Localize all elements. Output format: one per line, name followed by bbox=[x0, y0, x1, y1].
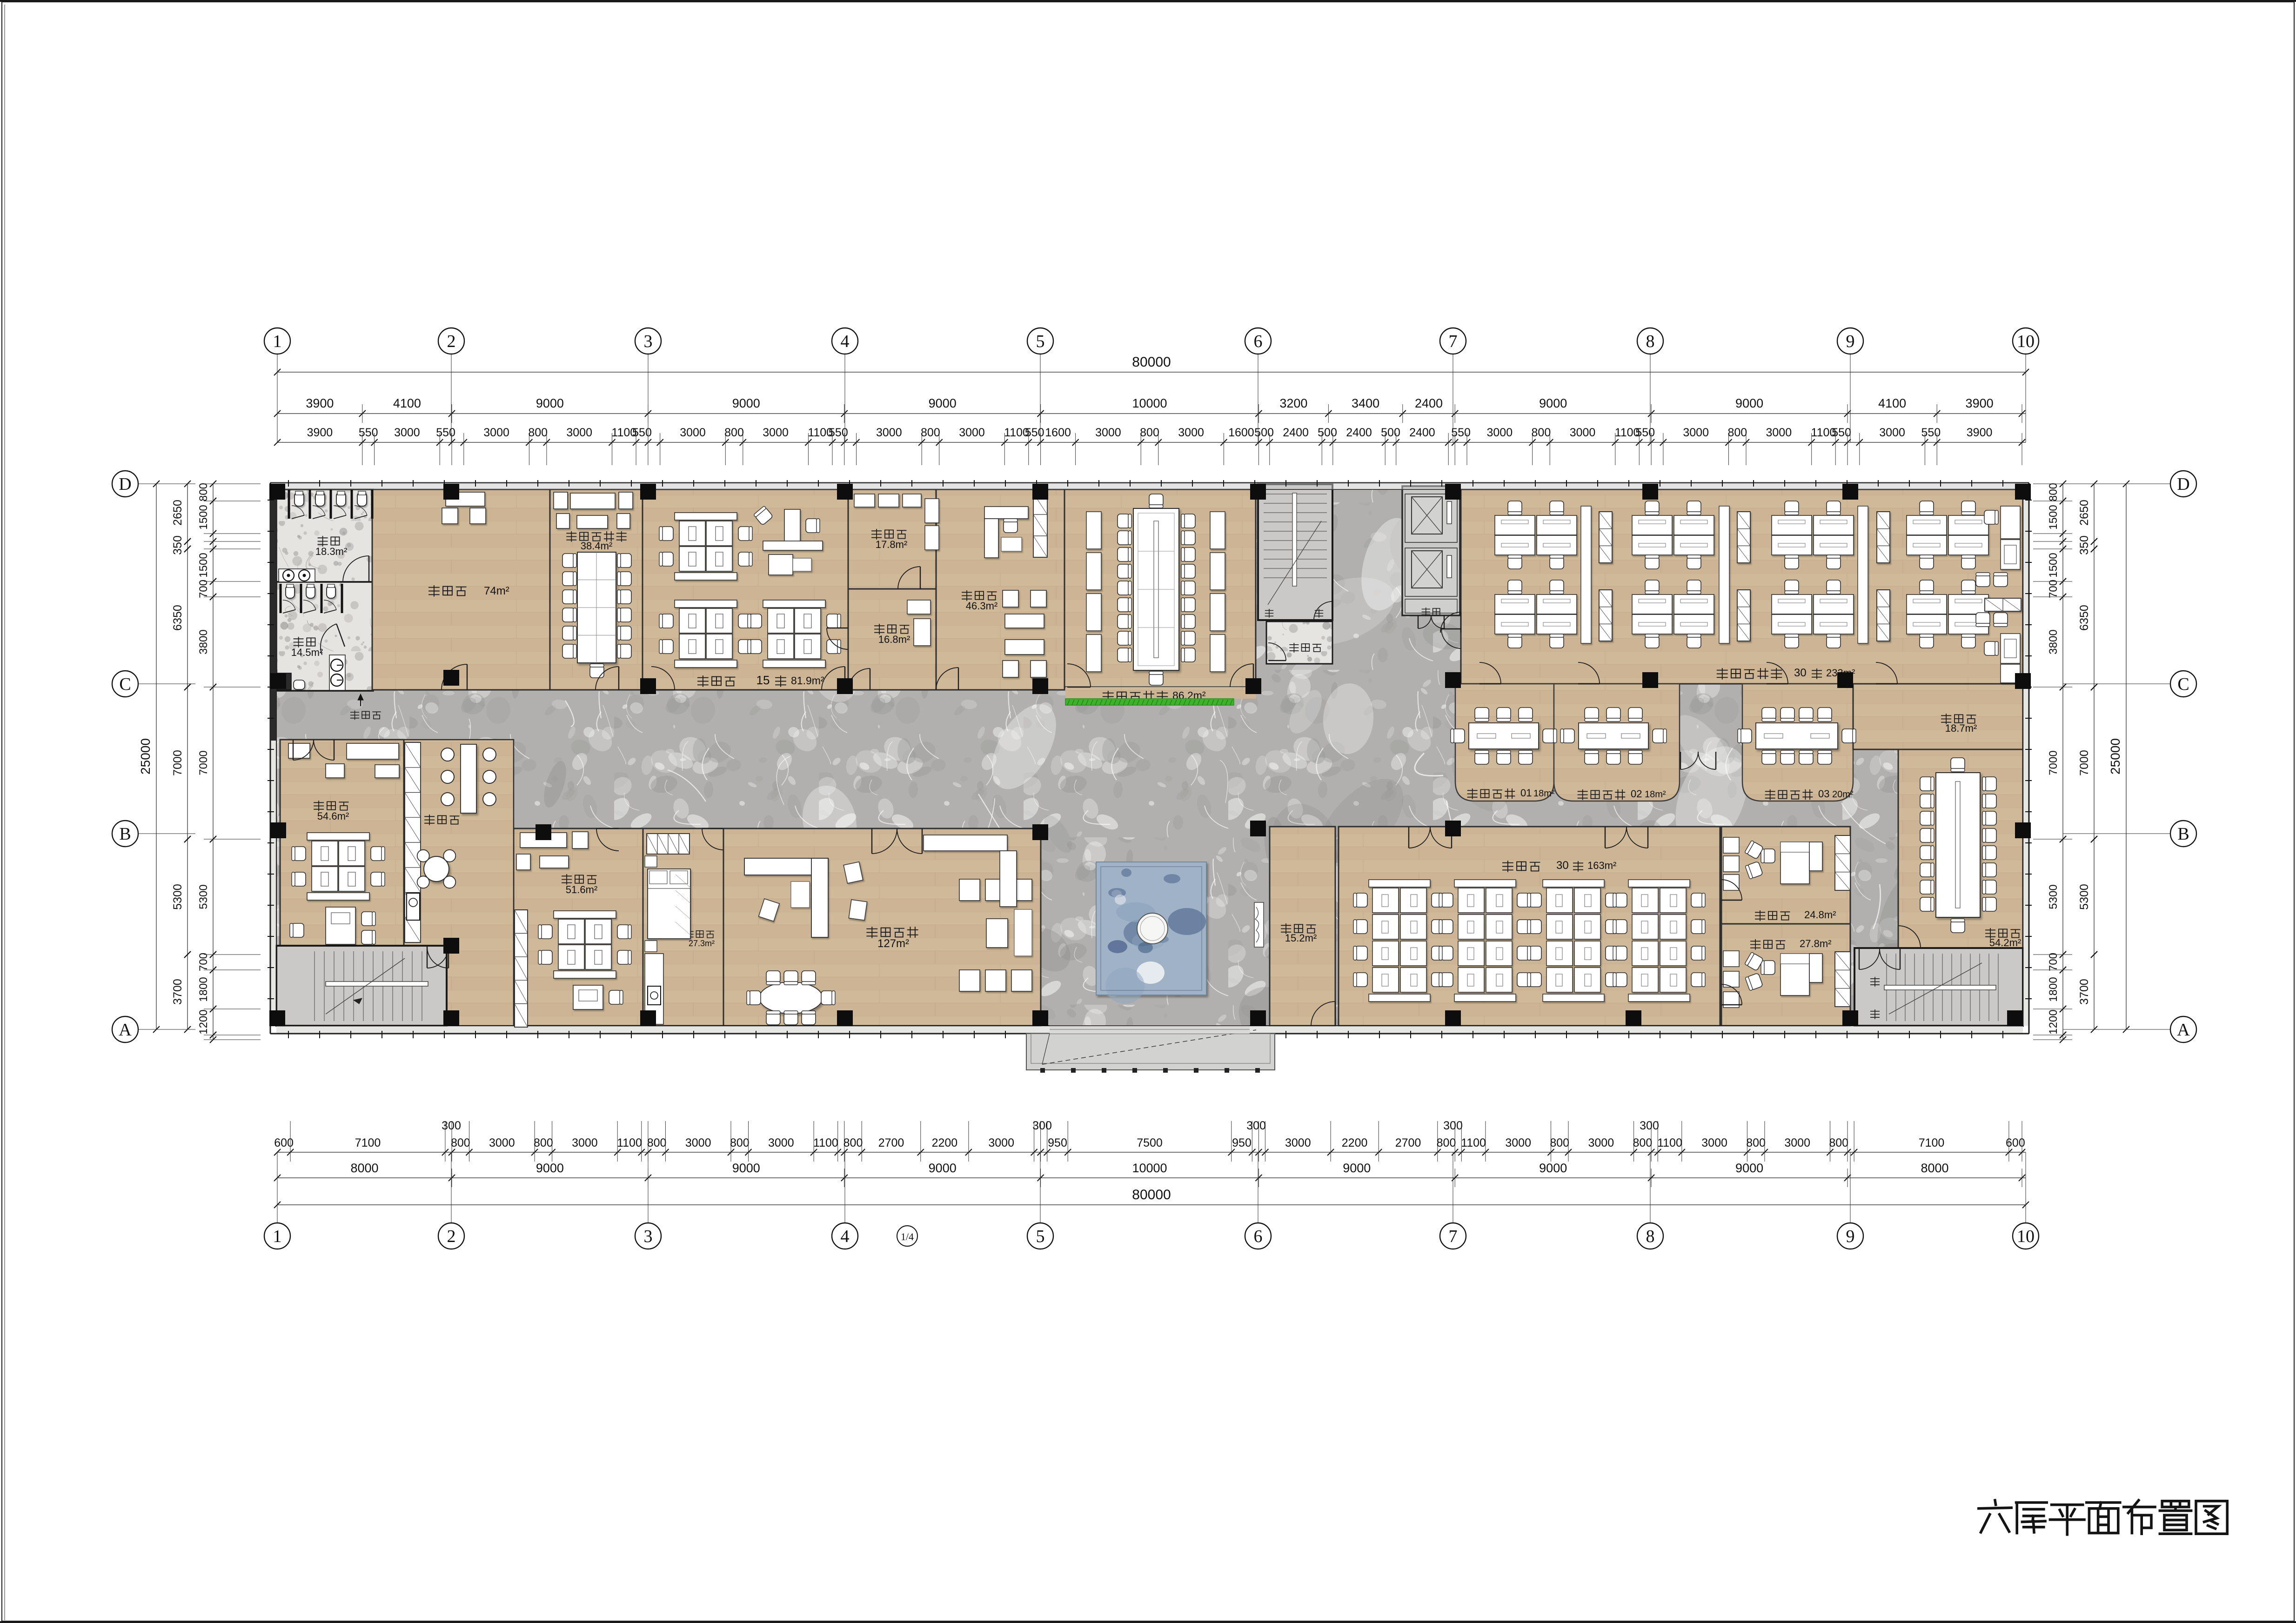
svg-text:10: 10 bbox=[2017, 332, 2035, 351]
svg-text:163m²: 163m² bbox=[1587, 860, 1616, 871]
svg-text:25000: 25000 bbox=[2108, 738, 2122, 775]
svg-text:7000: 7000 bbox=[2047, 750, 2060, 775]
svg-text:3700: 3700 bbox=[171, 979, 184, 1005]
svg-text:300: 300 bbox=[1246, 1119, 1266, 1132]
svg-text:3000: 3000 bbox=[685, 1136, 711, 1149]
svg-text:800: 800 bbox=[197, 483, 210, 501]
svg-text:18.3m²: 18.3m² bbox=[315, 546, 347, 557]
svg-text:9000: 9000 bbox=[1735, 1161, 1763, 1175]
svg-text:350: 350 bbox=[2078, 535, 2091, 555]
svg-text:3: 3 bbox=[644, 1227, 653, 1246]
svg-text:5300: 5300 bbox=[171, 884, 184, 910]
svg-text:9000: 9000 bbox=[929, 1161, 957, 1175]
svg-text:3000: 3000 bbox=[566, 426, 592, 439]
svg-text:3900: 3900 bbox=[306, 396, 334, 410]
svg-text:800: 800 bbox=[1633, 1136, 1653, 1149]
svg-text:3000: 3000 bbox=[988, 1136, 1014, 1149]
svg-text:7000: 7000 bbox=[2078, 750, 2091, 776]
svg-text:14.5m²: 14.5m² bbox=[291, 647, 323, 658]
svg-text:3900: 3900 bbox=[1967, 426, 1993, 439]
svg-text:9: 9 bbox=[1846, 1227, 1855, 1246]
svg-text:B: B bbox=[119, 824, 131, 844]
svg-text:46.3m²: 46.3m² bbox=[966, 600, 997, 612]
svg-text:550: 550 bbox=[359, 426, 378, 439]
svg-text:7: 7 bbox=[1449, 332, 1458, 351]
svg-text:D: D bbox=[2177, 474, 2189, 494]
svg-text:550: 550 bbox=[1025, 426, 1044, 439]
svg-text:9000: 9000 bbox=[1343, 1161, 1371, 1175]
svg-text:1: 1 bbox=[273, 332, 282, 351]
svg-text:700: 700 bbox=[197, 580, 210, 598]
svg-text:3000: 3000 bbox=[572, 1136, 598, 1149]
svg-text:800: 800 bbox=[534, 1136, 553, 1149]
svg-text:8: 8 bbox=[1646, 332, 1655, 351]
svg-text:8000: 8000 bbox=[350, 1161, 378, 1175]
svg-text:20m²: 20m² bbox=[1832, 789, 1854, 800]
svg-text:C: C bbox=[2177, 675, 2189, 694]
svg-text:81.9m²: 81.9m² bbox=[791, 675, 824, 687]
svg-text:3000: 3000 bbox=[876, 426, 902, 439]
svg-text:1100: 1100 bbox=[1657, 1136, 1682, 1149]
svg-text:700: 700 bbox=[2047, 953, 2060, 971]
svg-text:3000: 3000 bbox=[1285, 1136, 1311, 1149]
svg-text:800: 800 bbox=[843, 1136, 863, 1149]
svg-text:1800: 1800 bbox=[197, 977, 210, 1002]
svg-text:2700: 2700 bbox=[878, 1136, 904, 1149]
svg-text:600: 600 bbox=[2006, 1136, 2025, 1149]
svg-text:6: 6 bbox=[1254, 332, 1263, 351]
svg-text:600: 600 bbox=[274, 1136, 294, 1149]
svg-text:500: 500 bbox=[1254, 426, 1274, 439]
svg-text:7000: 7000 bbox=[171, 750, 184, 776]
svg-text:1800: 1800 bbox=[2047, 977, 2060, 1002]
svg-text:1500: 1500 bbox=[2047, 505, 2060, 529]
svg-text:7: 7 bbox=[1449, 1227, 1458, 1246]
svg-text:30: 30 bbox=[1556, 859, 1569, 872]
svg-text:500: 500 bbox=[1381, 426, 1400, 439]
svg-text:3000: 3000 bbox=[489, 1136, 515, 1149]
svg-text:80000: 80000 bbox=[1132, 354, 1171, 370]
svg-text:27.3m²: 27.3m² bbox=[689, 939, 715, 948]
svg-text:800: 800 bbox=[1140, 426, 1159, 439]
svg-text:950: 950 bbox=[1232, 1136, 1252, 1149]
svg-text:2650: 2650 bbox=[2078, 500, 2091, 526]
svg-text:5300: 5300 bbox=[2078, 884, 2091, 910]
svg-text:80000: 80000 bbox=[1132, 1187, 1171, 1202]
svg-text:1100: 1100 bbox=[1461, 1136, 1486, 1149]
svg-text:800: 800 bbox=[647, 1136, 667, 1149]
svg-text:9000: 9000 bbox=[732, 396, 760, 410]
svg-text:550: 550 bbox=[829, 426, 848, 439]
svg-text:300: 300 bbox=[1032, 1119, 1052, 1132]
svg-text:800: 800 bbox=[451, 1136, 470, 1149]
svg-text:2700: 2700 bbox=[1395, 1136, 1421, 1149]
svg-text:3700: 3700 bbox=[2078, 979, 2091, 1005]
svg-text:4100: 4100 bbox=[1878, 396, 1906, 410]
svg-text:3200: 3200 bbox=[1279, 396, 1307, 410]
svg-text:800: 800 bbox=[724, 426, 744, 439]
svg-text:3000: 3000 bbox=[1701, 1136, 1727, 1149]
svg-text:800: 800 bbox=[2047, 483, 2060, 501]
svg-text:2: 2 bbox=[447, 1227, 456, 1246]
svg-text:24.8m²: 24.8m² bbox=[1804, 909, 1836, 921]
svg-text:27.8m²: 27.8m² bbox=[1800, 938, 1831, 949]
svg-text:3000: 3000 bbox=[483, 426, 509, 439]
svg-text:800: 800 bbox=[1550, 1136, 1569, 1149]
svg-text:1200: 1200 bbox=[197, 1009, 210, 1034]
svg-text:16.8m²: 16.8m² bbox=[878, 634, 910, 645]
svg-text:7500: 7500 bbox=[1137, 1136, 1163, 1149]
svg-text:3000: 3000 bbox=[1095, 426, 1121, 439]
svg-text:9000: 9000 bbox=[536, 1161, 564, 1175]
svg-text:3000: 3000 bbox=[768, 1136, 794, 1149]
svg-text:800: 800 bbox=[528, 426, 548, 439]
svg-text:3000: 3000 bbox=[1505, 1136, 1531, 1149]
svg-text:9000: 9000 bbox=[1735, 396, 1763, 410]
svg-text:4100: 4100 bbox=[393, 396, 421, 410]
svg-text:5: 5 bbox=[1036, 332, 1045, 351]
svg-text:3000: 3000 bbox=[394, 426, 420, 439]
svg-text:17.8m²: 17.8m² bbox=[876, 539, 907, 550]
svg-text:127m²: 127m² bbox=[877, 937, 909, 950]
svg-text:C: C bbox=[119, 675, 131, 694]
svg-text:54.6m²: 54.6m² bbox=[317, 810, 349, 822]
svg-text:800: 800 bbox=[1829, 1136, 1848, 1149]
svg-text:6: 6 bbox=[1254, 1227, 1263, 1246]
svg-text:3000: 3000 bbox=[1683, 426, 1709, 439]
svg-text:3900: 3900 bbox=[307, 426, 333, 439]
svg-text:550: 550 bbox=[436, 426, 455, 439]
svg-text:01: 01 bbox=[1520, 787, 1532, 799]
svg-text:7100: 7100 bbox=[355, 1136, 381, 1149]
svg-text:B: B bbox=[2177, 824, 2189, 844]
svg-text:550: 550 bbox=[1832, 426, 1851, 439]
svg-text:3000: 3000 bbox=[763, 426, 789, 439]
svg-text:3000: 3000 bbox=[1178, 426, 1204, 439]
svg-text:3900: 3900 bbox=[1966, 396, 1994, 410]
svg-text:700: 700 bbox=[2047, 580, 2060, 598]
svg-text:10: 10 bbox=[2017, 1227, 2035, 1246]
svg-text:800: 800 bbox=[1746, 1136, 1766, 1149]
svg-text:800: 800 bbox=[730, 1136, 750, 1149]
svg-text:1600: 1600 bbox=[1045, 426, 1071, 439]
svg-text:1600: 1600 bbox=[1228, 426, 1254, 439]
svg-text:54.2m²: 54.2m² bbox=[1989, 937, 2021, 948]
svg-text:7100: 7100 bbox=[1919, 1136, 1945, 1149]
svg-text:1500: 1500 bbox=[2047, 553, 2060, 577]
svg-text:2400: 2400 bbox=[1409, 426, 1435, 439]
svg-text:4: 4 bbox=[841, 1227, 850, 1246]
svg-text:8000: 8000 bbox=[1921, 1161, 1948, 1175]
svg-text:51.6m²: 51.6m² bbox=[566, 884, 597, 895]
svg-text:3400: 3400 bbox=[1352, 396, 1379, 410]
svg-text:18m²: 18m² bbox=[1645, 789, 1666, 800]
svg-text:2200: 2200 bbox=[932, 1136, 958, 1149]
svg-text:3000: 3000 bbox=[959, 426, 985, 439]
svg-text:550: 550 bbox=[1451, 426, 1471, 439]
svg-text:800: 800 bbox=[1437, 1136, 1456, 1149]
svg-text:800: 800 bbox=[921, 426, 940, 439]
svg-text:1: 1 bbox=[273, 1227, 282, 1246]
svg-text:6350: 6350 bbox=[171, 605, 184, 631]
svg-text:10000: 10000 bbox=[1132, 1161, 1167, 1175]
svg-text:3000: 3000 bbox=[1784, 1136, 1810, 1149]
svg-text:5: 5 bbox=[1036, 1227, 1045, 1246]
svg-text:3800: 3800 bbox=[2047, 629, 2060, 654]
svg-text:3000: 3000 bbox=[1588, 1136, 1614, 1149]
svg-text:18.7m²: 18.7m² bbox=[1945, 722, 1977, 734]
svg-text:3000: 3000 bbox=[1766, 426, 1792, 439]
svg-text:300: 300 bbox=[1640, 1119, 1659, 1132]
svg-text:9000: 9000 bbox=[1539, 396, 1567, 410]
svg-text:350: 350 bbox=[171, 535, 184, 555]
svg-text:3000: 3000 bbox=[1486, 426, 1513, 439]
svg-text:1/4: 1/4 bbox=[901, 1231, 914, 1242]
svg-text:4: 4 bbox=[841, 332, 850, 351]
svg-text:3000: 3000 bbox=[1570, 426, 1596, 439]
svg-text:300: 300 bbox=[1443, 1119, 1463, 1132]
svg-text:550: 550 bbox=[1921, 426, 1941, 439]
svg-text:7000: 7000 bbox=[197, 750, 210, 775]
svg-text:700: 700 bbox=[197, 953, 210, 971]
svg-text:2: 2 bbox=[447, 332, 456, 351]
svg-text:A: A bbox=[2177, 1020, 2190, 1040]
svg-text:3: 3 bbox=[644, 332, 653, 351]
svg-text:1100: 1100 bbox=[813, 1136, 838, 1149]
svg-text:15.2m²: 15.2m² bbox=[1285, 932, 1317, 944]
svg-text:A: A bbox=[119, 1020, 132, 1040]
svg-text:550: 550 bbox=[1635, 426, 1655, 439]
svg-text:18m²: 18m² bbox=[1533, 788, 1555, 799]
svg-text:300: 300 bbox=[442, 1119, 461, 1132]
svg-text:5300: 5300 bbox=[197, 884, 210, 909]
svg-text:9000: 9000 bbox=[1539, 1161, 1567, 1175]
svg-text:9: 9 bbox=[1846, 332, 1855, 351]
svg-text:9000: 9000 bbox=[732, 1161, 760, 1175]
svg-text:38.4m²: 38.4m² bbox=[581, 540, 612, 552]
svg-text:1500: 1500 bbox=[197, 505, 210, 529]
svg-text:2650: 2650 bbox=[171, 500, 184, 526]
svg-text:500: 500 bbox=[1318, 426, 1337, 439]
svg-text:800: 800 bbox=[1532, 426, 1551, 439]
svg-text:2400: 2400 bbox=[1346, 426, 1372, 439]
svg-text:5300: 5300 bbox=[2047, 884, 2060, 909]
svg-text:74m²: 74m² bbox=[484, 585, 509, 597]
svg-text:950: 950 bbox=[1048, 1136, 1067, 1149]
svg-text:1100: 1100 bbox=[617, 1136, 642, 1149]
svg-text:15: 15 bbox=[756, 673, 770, 687]
svg-text:1200: 1200 bbox=[2047, 1009, 2060, 1034]
svg-text:9000: 9000 bbox=[929, 396, 957, 410]
svg-text:9000: 9000 bbox=[536, 396, 564, 410]
svg-text:3000: 3000 bbox=[1879, 426, 1905, 439]
svg-text:8: 8 bbox=[1646, 1227, 1655, 1246]
svg-text:3000: 3000 bbox=[680, 426, 706, 439]
svg-text:2200: 2200 bbox=[1342, 1136, 1368, 1149]
svg-text:10000: 10000 bbox=[1132, 396, 1167, 410]
svg-text:02: 02 bbox=[1631, 788, 1642, 800]
svg-text:550: 550 bbox=[632, 426, 652, 439]
svg-text:3800: 3800 bbox=[197, 629, 210, 654]
svg-text:2400: 2400 bbox=[1415, 396, 1443, 410]
svg-text:03: 03 bbox=[1818, 788, 1829, 800]
svg-text:30: 30 bbox=[1794, 667, 1807, 679]
svg-text:800: 800 bbox=[1727, 426, 1747, 439]
svg-text:6350: 6350 bbox=[2078, 605, 2091, 631]
svg-text:2400: 2400 bbox=[1283, 426, 1309, 439]
svg-text:D: D bbox=[119, 474, 131, 494]
svg-text:1500: 1500 bbox=[197, 553, 210, 577]
svg-text:25000: 25000 bbox=[138, 738, 153, 775]
